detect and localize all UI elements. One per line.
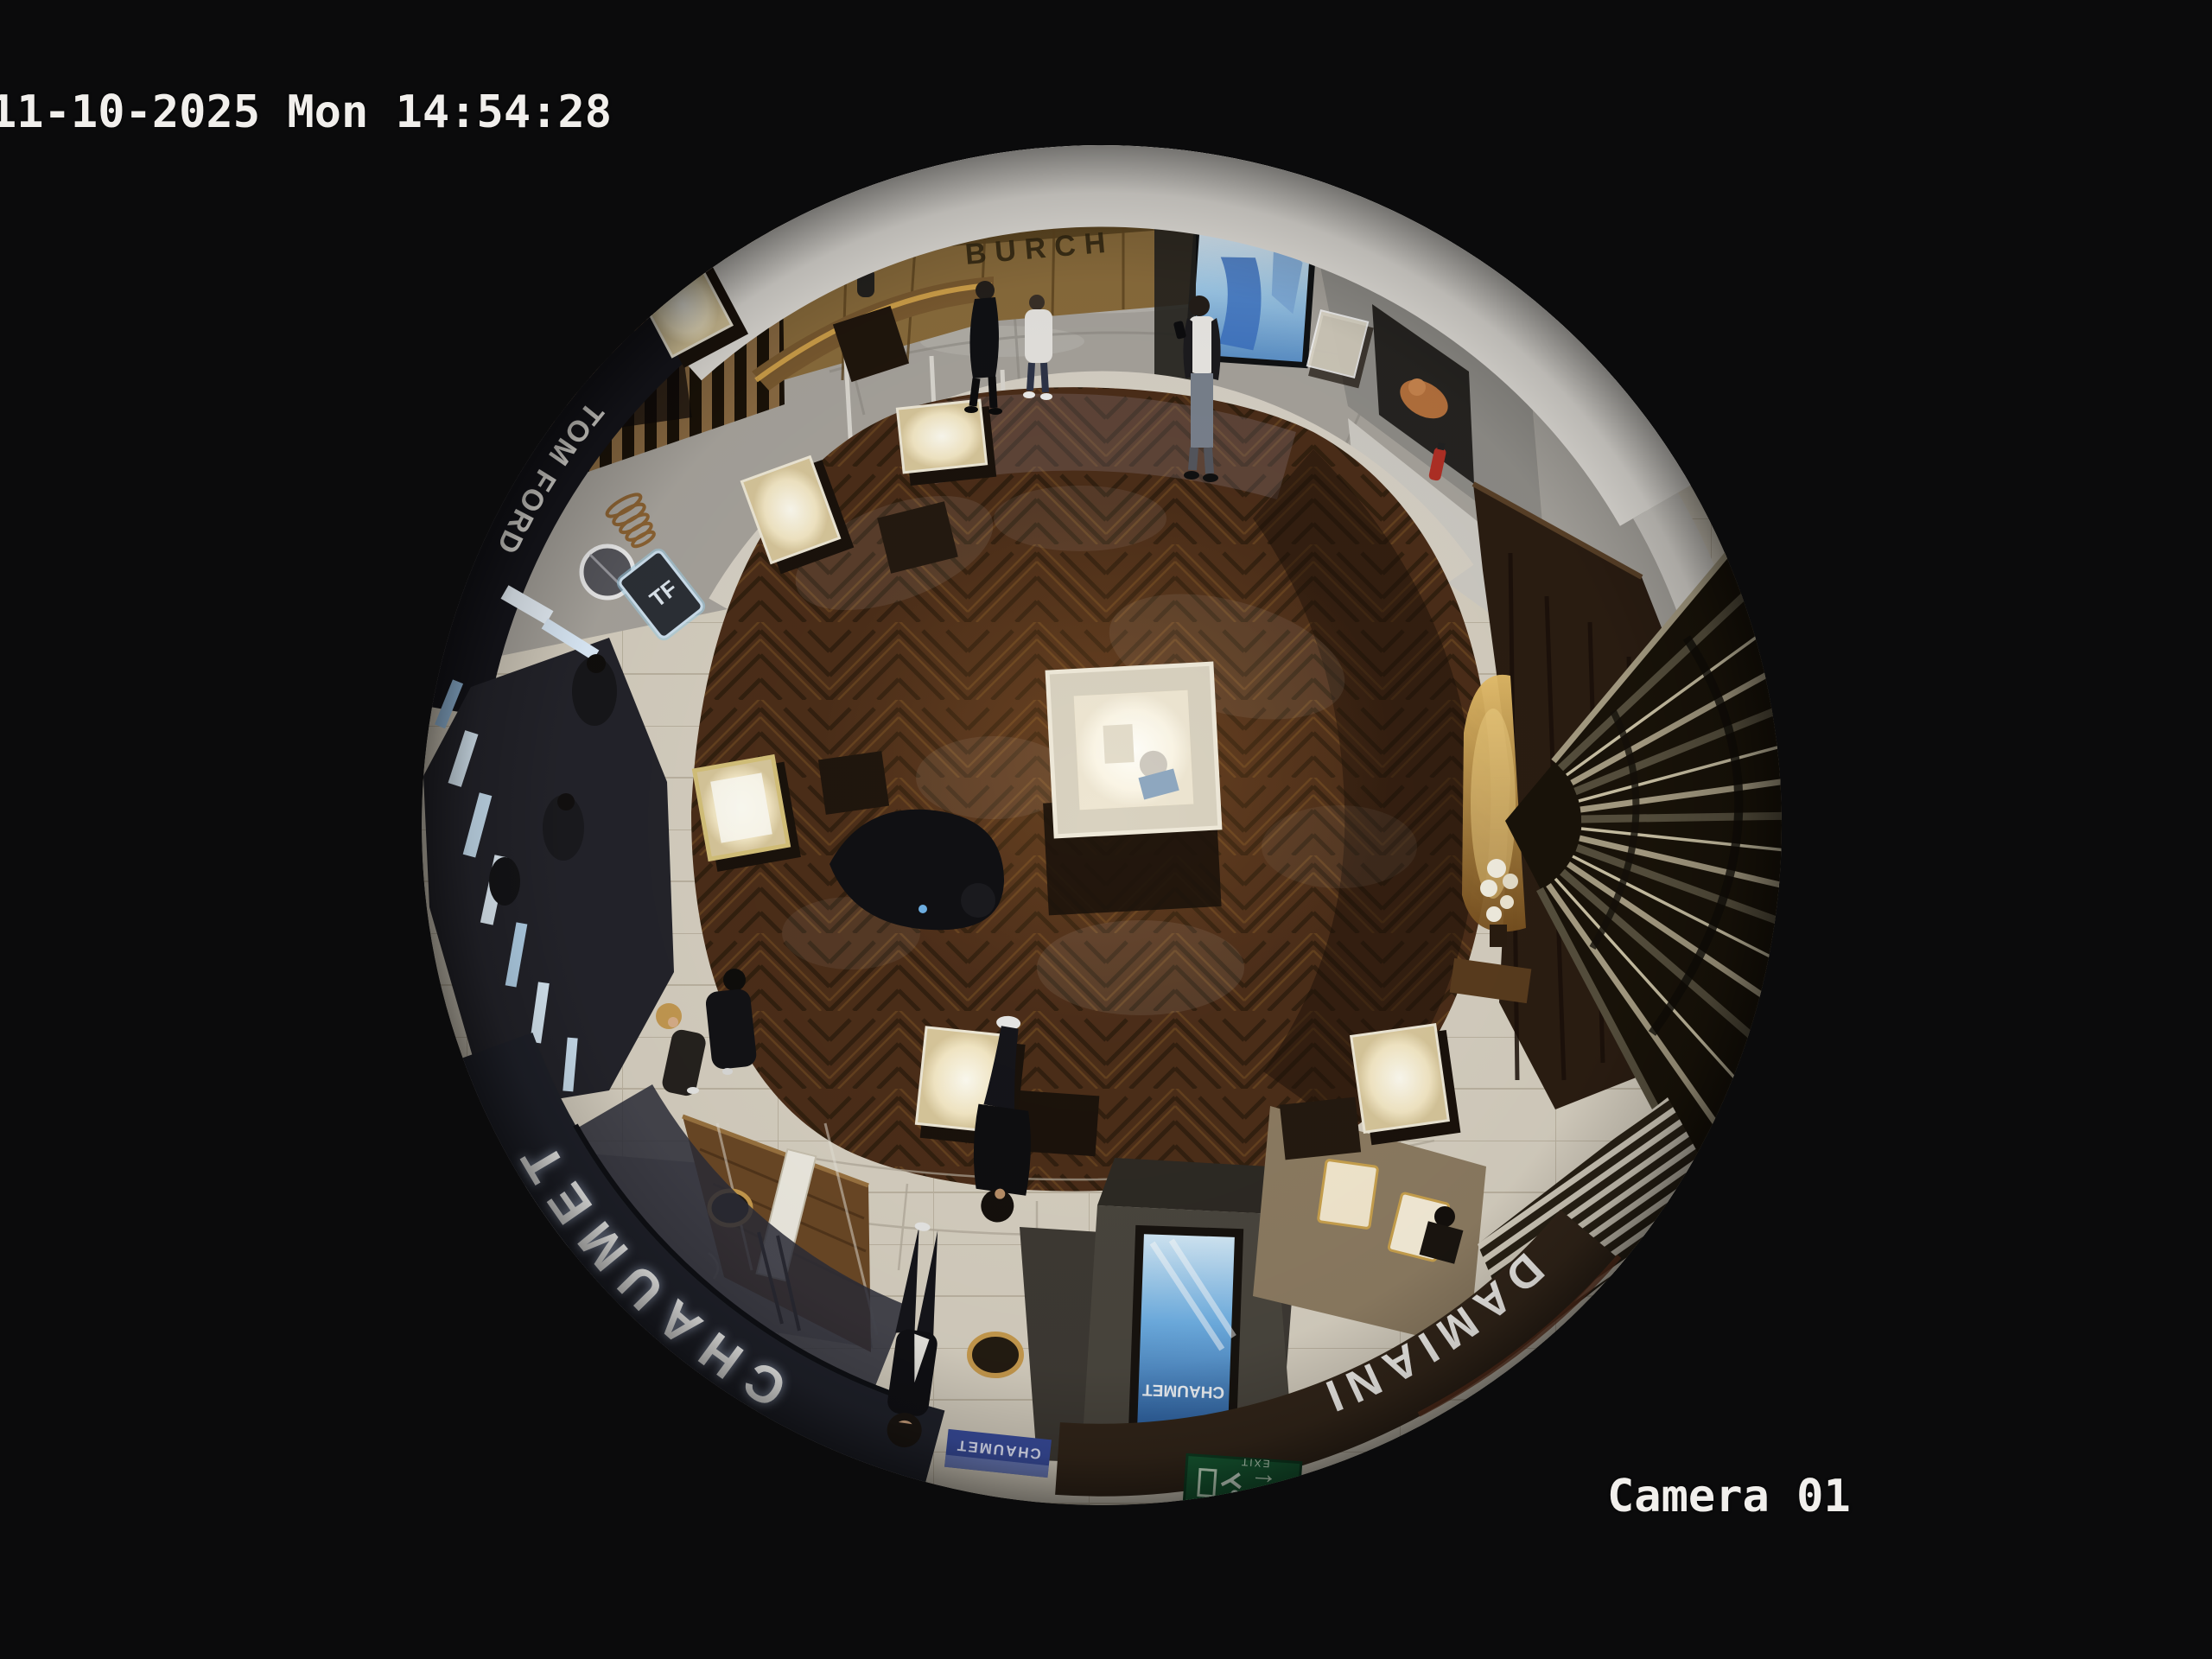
cctv-monitor-frame: BURCH [0,0,2212,1659]
osd-timestamp: 11-10-2025 Mon 14:54:28 [0,86,612,138]
lens-vignette [422,145,1782,1505]
fisheye-camera-view: BURCH [0,0,2212,1659]
osd-camera-label: Camera 01 [1607,1471,1851,1522]
